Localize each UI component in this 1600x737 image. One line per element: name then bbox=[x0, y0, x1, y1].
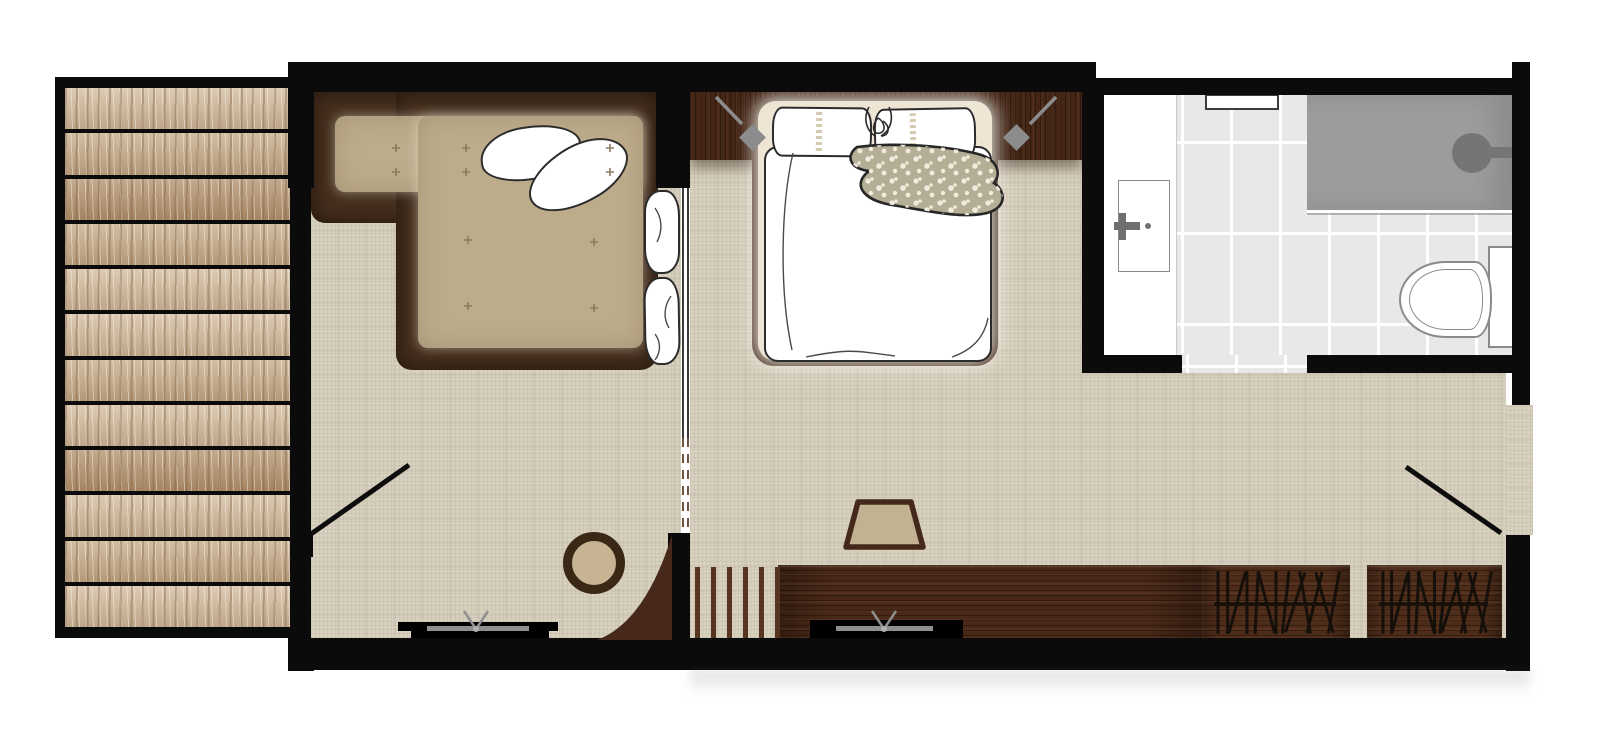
duvet bbox=[764, 146, 992, 362]
wall-left-corner bbox=[288, 638, 314, 671]
wall-left-pier bbox=[288, 62, 314, 188]
deck-plank bbox=[65, 133, 290, 174]
drain-dot-icon bbox=[1145, 223, 1151, 229]
screen-slat bbox=[727, 567, 732, 638]
wall-partition-pier bbox=[656, 92, 690, 188]
shower-arm-icon bbox=[1488, 147, 1514, 158]
wall-bathroom-bottom-left bbox=[1082, 355, 1182, 373]
wall-right-upper bbox=[1512, 62, 1530, 405]
screen-slat bbox=[743, 567, 748, 638]
screen-slat bbox=[711, 567, 716, 638]
faucet-handle-icon bbox=[1119, 213, 1126, 240]
deck-plank bbox=[65, 314, 290, 355]
deck-plank bbox=[65, 179, 290, 220]
partition-track-dashed bbox=[687, 438, 690, 535]
sliding-glass-partition bbox=[682, 188, 689, 440]
screen-slat bbox=[759, 567, 764, 638]
pillow-ribbon bbox=[816, 112, 822, 152]
screen-slat bbox=[695, 567, 700, 638]
wall-partition-stub bbox=[668, 533, 690, 638]
round-side-table bbox=[563, 532, 625, 594]
wall-bathroom-left bbox=[1082, 92, 1104, 372]
wall-left-thin bbox=[300, 188, 311, 538]
deck-plank bbox=[65, 224, 290, 265]
shower-edge bbox=[1307, 210, 1512, 213]
entry-doorway-floor bbox=[1506, 405, 1533, 535]
wall-top bbox=[290, 62, 1096, 92]
deck-plank bbox=[65, 360, 290, 401]
wall-bathroom-bottom-right bbox=[1307, 355, 1515, 373]
faucet-icon bbox=[1114, 222, 1140, 230]
deck-plank bbox=[65, 495, 290, 536]
deck-plank bbox=[65, 88, 290, 129]
wall-left-door-stub bbox=[292, 533, 313, 557]
deck-plank bbox=[65, 269, 290, 310]
wall-top-bathroom bbox=[1096, 78, 1530, 95]
bed-pillow-left bbox=[772, 106, 873, 157]
tv-screen-living bbox=[427, 626, 529, 631]
drop-shadow bbox=[690, 670, 1530, 696]
wall-bottom bbox=[297, 638, 1515, 670]
partition-track-dashed bbox=[682, 438, 685, 535]
deck-plank bbox=[65, 586, 290, 627]
tv-screen-bedroom bbox=[836, 626, 933, 631]
deck-plank bbox=[65, 450, 290, 491]
wall-left-thin-lower bbox=[300, 557, 311, 641]
slatted-screen bbox=[695, 567, 780, 638]
deck-plank bbox=[65, 405, 290, 446]
bathroom-door-threshold bbox=[1182, 355, 1307, 373]
bed-pillow-right bbox=[874, 107, 977, 161]
deck-plank bbox=[65, 541, 290, 582]
pillow-ribbon bbox=[910, 113, 917, 155]
wardrobe-panel-2 bbox=[1367, 565, 1502, 638]
wall-niche bbox=[1205, 95, 1279, 110]
toilet-rim bbox=[1409, 269, 1483, 330]
deck-planks bbox=[65, 88, 290, 627]
sofa-bolster-1 bbox=[644, 190, 680, 274]
sofa-bolster-2 bbox=[643, 277, 681, 366]
wood-deck-terrace bbox=[55, 77, 300, 638]
wardrobe-panel-1 bbox=[1202, 565, 1350, 638]
screen-slat bbox=[775, 567, 780, 638]
floor-plan bbox=[0, 0, 1600, 737]
shower-head-icon bbox=[1452, 133, 1492, 173]
